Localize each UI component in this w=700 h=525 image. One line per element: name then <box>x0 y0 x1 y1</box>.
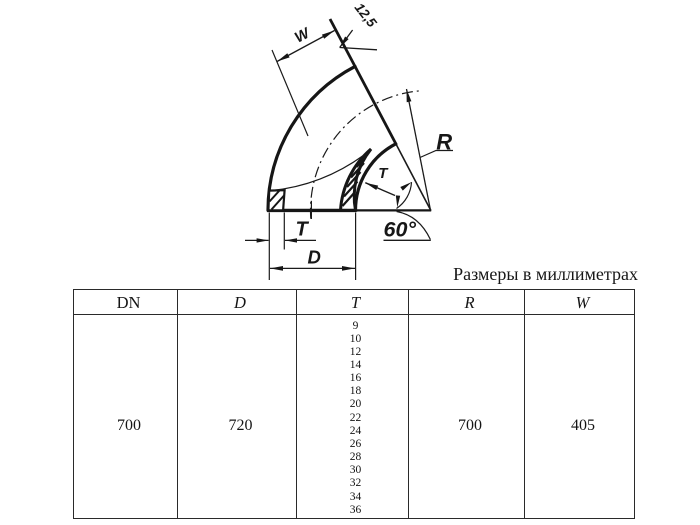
svg-text:12,5: 12,5 <box>352 0 380 30</box>
svg-text:60°: 60° <box>384 218 417 242</box>
svg-text:T: T <box>378 165 389 182</box>
svg-text:T: T <box>296 219 310 241</box>
svg-text:R: R <box>436 129 452 154</box>
